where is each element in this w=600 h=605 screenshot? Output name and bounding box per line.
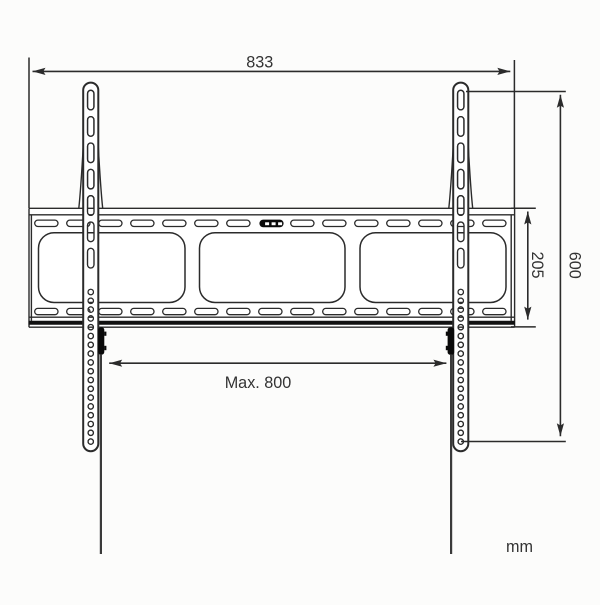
svg-text:Max. 800: Max. 800 — [225, 374, 292, 392]
svg-text:833: 833 — [246, 54, 273, 72]
svg-text:mm: mm — [506, 538, 533, 556]
svg-text:600: 600 — [566, 252, 584, 279]
svg-text:205: 205 — [528, 251, 546, 278]
